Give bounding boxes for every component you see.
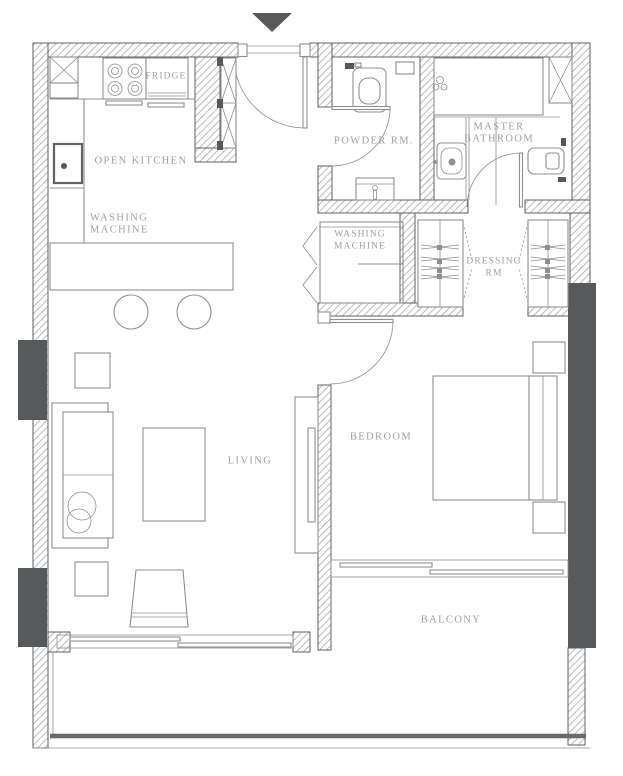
wardrobe-right [528, 220, 568, 307]
dashed-line [463, 223, 472, 260]
hanger-rail [437, 268, 442, 273]
duct-shaft [549, 57, 572, 103]
door-leaf [330, 320, 393, 323]
hanger-rail [437, 259, 442, 264]
label-master-bathroom: MASTER BATHROOM [464, 122, 534, 145]
armchair [130, 570, 188, 627]
entrance-arrow-icon [252, 13, 292, 32]
label-fridge: FRIDGE [146, 71, 187, 83]
door-swing-arc [330, 321, 393, 384]
wall-powder-left-a [318, 43, 332, 107]
bathtub [434, 58, 543, 115]
mattress [433, 376, 529, 500]
tv-screen [308, 428, 315, 522]
kitchen-sink [54, 144, 82, 183]
stove [103, 58, 146, 99]
door-leaf [332, 107, 390, 110]
armchair-body [130, 570, 188, 627]
column-left-lower [18, 568, 47, 647]
wall-dressing-right [570, 213, 590, 288]
faucet [433, 160, 437, 164]
entrance-door [234, 44, 310, 128]
hanger-rail [545, 245, 550, 250]
wall-top-right [310, 43, 590, 57]
bedroom [318, 312, 565, 533]
label-dressing-room: DRESSING RM [466, 257, 521, 280]
door-leaf [520, 153, 523, 207]
wall-top-left [33, 43, 238, 57]
column-right [568, 283, 596, 648]
wall-kitchen-entry [195, 57, 220, 162]
hanger-rail [545, 268, 550, 273]
cistern-control [345, 63, 354, 69]
window-panel [178, 643, 291, 647]
toilet-bowl [359, 78, 380, 104]
kitchen-island [50, 243, 233, 290]
wall-balcony-right [568, 648, 585, 745]
coffee-table [143, 428, 205, 521]
hanger-rail [545, 259, 550, 264]
door-swing-arc [234, 57, 305, 128]
door-swing-arc [467, 153, 521, 207]
powder-sink [356, 178, 394, 200]
toilet-bowl [546, 153, 559, 169]
flush-control [558, 177, 566, 182]
sink-counter [356, 178, 394, 200]
label-living: LIVING [228, 455, 273, 467]
cabinet-hinge [217, 99, 223, 108]
wall-mid-band-right [525, 200, 590, 213]
sink-drain [61, 163, 67, 169]
bifold-door [303, 227, 317, 303]
wall-kitchen-entry-foot [195, 148, 236, 162]
side-table [75, 562, 108, 596]
label-washing-machine-closet: WASHING MACHINE [334, 230, 386, 253]
living-room [52, 353, 318, 627]
sink-basin [54, 144, 82, 183]
window-panel [430, 570, 563, 574]
nightstand [533, 502, 565, 533]
floor-plan-drawing [0, 0, 623, 776]
door-jamb [318, 312, 330, 323]
bedroom-sliding-window [331, 560, 568, 577]
label-washing-machine-kitchen: WASHING MACHINE [90, 213, 149, 236]
hanger-rail [437, 274, 442, 279]
floor-plan: FRIDGE OPEN KITCHEN WASHING MACHINE POWD… [0, 0, 623, 776]
bar-stool [177, 295, 211, 329]
wardrobe-left [418, 220, 463, 307]
wall-living-bedroom [318, 385, 331, 650]
nightstand [533, 342, 565, 373]
cabinet-hinge [217, 57, 223, 66]
label-bedroom: BEDROOM [350, 431, 412, 443]
balcony [33, 652, 590, 748]
door-jamb [238, 44, 247, 57]
bathroom-sink [433, 143, 466, 179]
shaft-box [50, 83, 78, 98]
hanger-rail [437, 245, 442, 250]
wall-mid-band-left [318, 200, 468, 213]
bed [433, 376, 557, 500]
wall-window-pier-right [293, 632, 310, 652]
door-handle [148, 103, 184, 107]
dashed-line [519, 223, 528, 260]
side-table [75, 353, 110, 388]
window-panel [340, 563, 432, 567]
sink-drain [449, 159, 456, 166]
duct-shaft [50, 57, 78, 98]
toilet [345, 63, 386, 112]
door-leaf [303, 57, 307, 128]
cabinet-hinge [217, 141, 223, 150]
powder-room [332, 62, 414, 200]
door-jamb [300, 44, 310, 57]
living-sliding-window [57, 635, 293, 648]
door-handle [106, 101, 142, 105]
flush-control [561, 138, 566, 146]
sofa [52, 403, 113, 548]
cistern-control [355, 63, 361, 67]
column-left-upper [18, 340, 47, 420]
window-panel [70, 637, 180, 641]
label-open-kitchen: OPEN KITCHEN [95, 155, 188, 167]
wall-right-upper [572, 43, 590, 213]
toilet [528, 138, 566, 182]
hanger-rail [545, 274, 550, 279]
label-balcony: BALCONY [421, 614, 482, 626]
tv-unit [295, 397, 318, 553]
wall-powder-bath-divider [420, 57, 434, 200]
bar-stool [114, 295, 148, 329]
label-powder-room: POWDER RM. [334, 135, 414, 147]
shelf [396, 62, 414, 74]
